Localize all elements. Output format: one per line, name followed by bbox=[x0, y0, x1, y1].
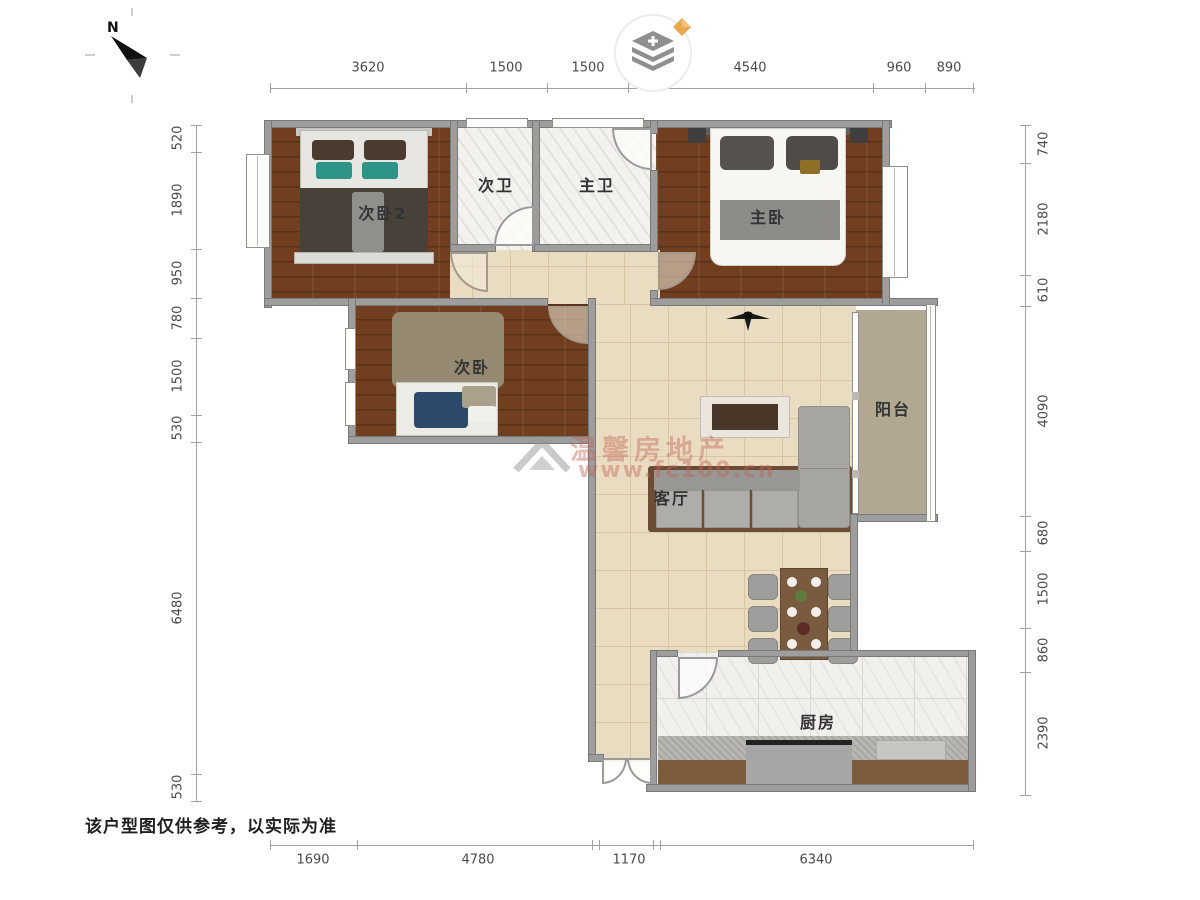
dim-label: 610 bbox=[1037, 278, 1052, 303]
dimension-tick bbox=[1020, 125, 1031, 126]
room-bath-master-label: 主卫 bbox=[579, 172, 615, 196]
plate bbox=[787, 577, 797, 587]
window-mullion bbox=[257, 156, 258, 246]
dim-label: 530 bbox=[171, 416, 186, 441]
room-master-label: 主卧 bbox=[750, 204, 786, 228]
dim-label: 950 bbox=[171, 261, 186, 286]
pillow bbox=[364, 140, 406, 160]
dimension-tick bbox=[973, 840, 974, 850]
wall bbox=[650, 298, 938, 306]
dim-label: 1500 bbox=[1037, 572, 1052, 605]
dim-label: 780 bbox=[171, 306, 186, 331]
dimension-tick bbox=[973, 83, 974, 93]
dim-label: 4780 bbox=[461, 853, 494, 868]
dim-label: 530 bbox=[171, 775, 186, 800]
wall bbox=[534, 244, 658, 252]
dimension-tick bbox=[1020, 163, 1031, 164]
dimension-tick bbox=[466, 83, 467, 93]
watermark-url: www.fc100.cn bbox=[578, 458, 776, 483]
slider-notch bbox=[852, 470, 859, 478]
entry-floor bbox=[592, 655, 654, 762]
dim-label: 680 bbox=[1037, 521, 1052, 546]
dimension-tick bbox=[547, 83, 548, 93]
sofa-cushion bbox=[704, 490, 750, 528]
dimension-tick bbox=[191, 152, 202, 153]
dim-label: 2180 bbox=[1037, 202, 1052, 235]
dimension-tick bbox=[599, 840, 600, 850]
plate bbox=[811, 639, 821, 649]
wall bbox=[646, 784, 976, 792]
window-mullion bbox=[930, 306, 931, 520]
dim-label: 1500 bbox=[571, 61, 604, 76]
table-bowl bbox=[797, 622, 810, 635]
dimension-line-right bbox=[1025, 125, 1026, 795]
window bbox=[246, 154, 270, 248]
sofa-chaise-seam bbox=[800, 468, 848, 469]
dining-chair bbox=[748, 606, 778, 632]
dimension-tick bbox=[1020, 275, 1031, 276]
dim-label: 1690 bbox=[296, 853, 329, 868]
wall bbox=[264, 298, 548, 306]
pillow-teal bbox=[316, 162, 352, 179]
kitchen-stove bbox=[746, 740, 852, 786]
window bbox=[926, 304, 936, 522]
dimension-tick bbox=[653, 840, 654, 850]
compass-icon: N bbox=[85, 8, 180, 103]
dim-label: 860 bbox=[1037, 638, 1052, 663]
dim-label: 2390 bbox=[1037, 716, 1052, 749]
dim-label: 890 bbox=[937, 61, 962, 76]
plate bbox=[811, 607, 821, 617]
room-living-label: 客厅 bbox=[654, 485, 690, 509]
dim-label: 1500 bbox=[489, 61, 522, 76]
dimension-tick bbox=[270, 83, 271, 93]
pillow-teal bbox=[362, 162, 398, 179]
dim-label: 1890 bbox=[171, 183, 186, 216]
bed-footboard bbox=[294, 252, 434, 264]
window bbox=[345, 382, 356, 426]
bay-window bbox=[882, 166, 908, 278]
entry-door-arc bbox=[602, 758, 627, 784]
watermark-logo-icon bbox=[512, 424, 572, 472]
dimension-tick bbox=[270, 840, 271, 850]
dim-label: 4540 bbox=[733, 61, 766, 76]
floor-plan: 次卧2 次卫 主卫 主卧 次卧 客厅 阳台 厨房 温馨房地产 www.fc100… bbox=[0, 0, 1200, 900]
pillow bbox=[312, 140, 354, 160]
dimension-tick bbox=[191, 125, 202, 126]
nightstand bbox=[850, 128, 868, 143]
window bbox=[552, 118, 644, 128]
dim-label: 1500 bbox=[171, 359, 186, 392]
dimension-tick bbox=[1020, 516, 1031, 517]
disclaimer-text: 该户型图仅供参考，以实际为准 bbox=[85, 812, 337, 837]
table-plant bbox=[795, 590, 807, 602]
room-bath2-label: 次卫 bbox=[478, 172, 514, 196]
dim-label: 6480 bbox=[171, 591, 186, 624]
dimension-line-bottom bbox=[270, 845, 973, 846]
dining-chair bbox=[748, 574, 778, 600]
pillow bbox=[462, 386, 496, 408]
dimension-tick bbox=[660, 840, 661, 850]
wall bbox=[588, 298, 596, 762]
window bbox=[466, 118, 528, 128]
dimension-tick bbox=[191, 801, 202, 802]
ceiling-fan-icon bbox=[724, 304, 772, 332]
dimension-tick bbox=[1020, 672, 1031, 673]
bed-item bbox=[800, 160, 820, 174]
room-bedroom3-label: 次卧 bbox=[454, 354, 490, 378]
wall bbox=[850, 514, 858, 654]
bed-clothes bbox=[414, 392, 468, 428]
sofa-cushion bbox=[752, 490, 798, 528]
room-bedroom2-label: 次卧2 bbox=[358, 200, 407, 224]
dimension-tick bbox=[1020, 306, 1031, 307]
dimension-tick bbox=[191, 249, 202, 250]
window-mullion bbox=[894, 168, 895, 276]
dim-label: 520 bbox=[171, 126, 186, 151]
dim-label: 4090 bbox=[1037, 394, 1052, 427]
room-balcony-label: 阳台 bbox=[875, 396, 911, 420]
room-kitchen-label: 厨房 bbox=[800, 709, 836, 733]
nightstand bbox=[688, 128, 706, 143]
plate bbox=[811, 577, 821, 587]
dim-label: 6340 bbox=[799, 853, 832, 868]
dim-label: 1170 bbox=[612, 853, 645, 868]
dimension-tick bbox=[191, 774, 202, 775]
plate bbox=[787, 607, 797, 617]
sofa-chaise bbox=[798, 406, 850, 528]
pillow bbox=[468, 406, 496, 422]
entry-door-arc bbox=[627, 758, 652, 784]
compass-north-label: N bbox=[107, 20, 119, 36]
dimension-tick bbox=[1020, 795, 1031, 796]
dimension-line-left bbox=[196, 125, 197, 801]
dimension-tick bbox=[191, 442, 202, 443]
slider-notch bbox=[852, 392, 859, 400]
dim-label: 740 bbox=[1037, 132, 1052, 157]
brand-logo-icon bbox=[610, 10, 696, 96]
wall bbox=[968, 650, 976, 792]
dimension-tick bbox=[357, 840, 358, 850]
window bbox=[345, 328, 356, 370]
dimension-tick bbox=[191, 415, 202, 416]
wall bbox=[450, 244, 496, 252]
wall bbox=[650, 170, 658, 252]
kitchen-sink bbox=[876, 740, 946, 760]
dimension-tick bbox=[873, 83, 874, 93]
dim-label: 3620 bbox=[351, 61, 384, 76]
dimension-tick bbox=[1020, 551, 1031, 552]
pillow bbox=[720, 136, 774, 170]
dimension-tick bbox=[191, 338, 202, 339]
plate bbox=[787, 639, 797, 649]
balcony-slider bbox=[852, 312, 859, 514]
dimension-tick bbox=[925, 83, 926, 93]
wall bbox=[450, 120, 458, 252]
dimension-tick bbox=[592, 840, 593, 850]
dimension-tick bbox=[1020, 628, 1031, 629]
dimension-tick bbox=[191, 298, 202, 299]
dim-label: 960 bbox=[887, 61, 912, 76]
tv bbox=[712, 404, 778, 430]
wall bbox=[718, 650, 976, 657]
